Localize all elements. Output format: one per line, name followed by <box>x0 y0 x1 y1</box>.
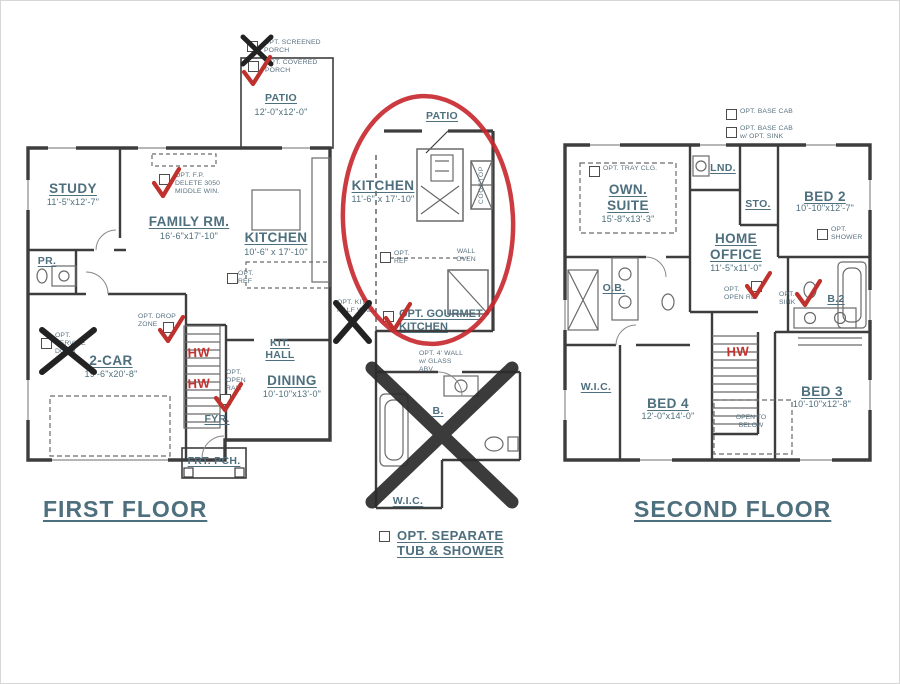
opt-half-wall-label: OPT. KIT. HALF WALL <box>337 299 376 315</box>
open-to-below-label: OPEN TO BELOW <box>736 414 766 430</box>
study-dims: 11'-5"x12'-7" <box>47 197 99 208</box>
foyer-label: FYR. <box>204 413 229 425</box>
bed2-dims: 10'-10"x12'-7" <box>796 203 854 214</box>
storage-label: STO. <box>745 198 771 210</box>
tub <box>380 394 408 466</box>
gourmet-inset-fixtures <box>390 149 492 314</box>
bed4-dims: 12'-0"x14'-0" <box>642 411 695 422</box>
b2-toilet <box>804 282 816 298</box>
kitchen-island <box>252 190 300 230</box>
opt-screened-porch-checkbox <box>247 41 258 52</box>
opt-open-rail-checkbox <box>220 394 231 405</box>
gourmet-patio-label: PATIO <box>426 110 458 122</box>
owners-suite-dims: 15'-8"x13'-3" <box>602 214 655 225</box>
kitchen-label: KITCHEN <box>245 230 308 246</box>
bath-vanity <box>444 376 478 396</box>
powder-room-label: PR. <box>38 255 56 267</box>
ob-toilet <box>662 294 674 310</box>
opt-open-rail-sf-checkbox <box>751 281 762 292</box>
second-floor-title: SECOND FLOOR <box>634 496 831 523</box>
b2-vanity <box>794 308 856 328</box>
opt-gourmet-kitchen-label: OPT. GOURMET KITCHEN <box>399 308 483 334</box>
toilet-tank <box>508 437 518 451</box>
hw-mark-sf: HW <box>726 344 749 360</box>
opt-sink-label: OPT. SINK <box>779 291 795 307</box>
dining-dims: 10'-10"x13'-0" <box>263 389 321 400</box>
opt-shower-checkbox <box>817 229 828 240</box>
bath2-label: B.2 <box>827 293 844 305</box>
pr-toilet <box>37 269 47 283</box>
bath-wic-label: W.I.C. <box>393 495 423 507</box>
bed4-label: BED 4 <box>647 396 689 412</box>
hw-mark-lower: HW <box>187 376 210 392</box>
opt-screened-porch-label: OPT. SCREENED PORCH <box>264 39 321 55</box>
family-room-label: FAMILY RM. <box>149 214 230 230</box>
dining-label: DINING <box>267 373 317 389</box>
floorplan-page: PATIO 12'-0"x12'-0" OPT. SCREENED PORCH … <box>0 0 900 684</box>
wic-sf-label: W.I.C. <box>581 381 611 393</box>
garage-dims: 19'-6"x20'-8" <box>85 369 138 380</box>
opt-fireplace-label: OPT. F.P. DELETE 3050 MIDDLE WIN. <box>175 172 220 196</box>
bed3-label: BED 3 <box>801 384 843 400</box>
opt-fridge-checkbox <box>227 273 238 284</box>
opt-tray-clg-label: OPT. TRAY CLG. <box>603 165 657 173</box>
opt-base-cab-sink-label: OPT. BASE CAB w/ OPT. SINK <box>740 125 793 141</box>
window-lines <box>28 145 870 460</box>
garage-door-dashed <box>50 396 170 456</box>
opt-open-rail-label: OPT. OPEN RAIL <box>226 369 246 393</box>
toilet-bowl <box>485 437 503 451</box>
front-porch-label: FRT. PCH. <box>188 455 241 467</box>
home-office-label: HOME OFFICE <box>710 231 762 263</box>
opt-fridge-label: OPT. REF <box>238 270 254 286</box>
opt-separate-tub-label: OPT. SEPARATE TUB & SHOWER <box>397 528 504 559</box>
gourmet-kitchen-dims: 11'-6" x 17'-10" <box>352 194 415 205</box>
patio-dims: 12'-0"x12'-0" <box>255 107 308 118</box>
kitchen-counter <box>312 158 330 282</box>
window-gaps <box>28 145 870 460</box>
opt-wall-glass-label: OPT. 4' WALL w/ GLASS ABV. <box>419 350 463 374</box>
bath-inset-fixtures <box>380 372 518 466</box>
owners-bath-label: O.B. <box>603 282 626 294</box>
opt-gourmet-kitchen-checkbox <box>383 311 394 322</box>
first-floor-title: FIRST FLOOR <box>43 496 207 523</box>
opt-shower-label: OPT. SHOWER <box>831 226 863 242</box>
opt-base-cab-checkbox <box>726 109 737 120</box>
family-room-dims: 16'-6"x17'-10" <box>160 231 218 242</box>
opt-service-door-label: OPT. SERVICE DOOR <box>55 332 86 356</box>
owners-suite-label: OWN. SUITE <box>607 182 649 214</box>
opt-tray-clg-checkbox <box>589 166 600 177</box>
fireplace-dashed-box <box>152 154 216 166</box>
pr-vanity <box>52 266 76 286</box>
bed3-dims: 10'-10"x12'-8" <box>793 399 851 410</box>
opt-base-cab-sink-checkbox <box>726 127 737 138</box>
floorplan-linework <box>0 0 900 684</box>
first-floor-walls <box>28 58 333 478</box>
home-office-dims: 11'-5"x11'-0" <box>710 263 762 274</box>
opt-covered-porch-label: OPT. COVERED PORCH <box>265 59 317 75</box>
patio-label: PATIO <box>265 92 297 104</box>
hw-mark-upper: HW <box>187 345 210 361</box>
garage-label: 2-CAR <box>89 353 132 369</box>
cooktop-label: COOKTOP <box>478 166 486 204</box>
gourmet-opt-fridge-label: OPT. REF <box>394 250 410 266</box>
bath-label: B. <box>432 405 443 417</box>
laundry-label: LND. <box>710 162 736 174</box>
kitchen-dims: 10'-6" x 17'-10" <box>244 247 308 258</box>
opt-fireplace-checkbox <box>159 174 170 185</box>
study-label: STUDY <box>49 181 97 197</box>
opt-separate-tub-checkbox <box>379 531 390 542</box>
gourmet-island <box>417 149 463 221</box>
gourmet-opt-fridge-checkbox <box>380 252 391 263</box>
opt-service-door-checkbox <box>41 338 52 349</box>
gourmet-kitchen-label: KITCHEN <box>352 178 415 194</box>
opt-base-cab-label: OPT. BASE CAB <box>740 108 793 116</box>
wall-oven-label: WALL OVEN <box>456 248 475 264</box>
opt-drop-zone-checkbox <box>163 322 174 333</box>
opt-covered-porch-checkbox <box>248 61 259 72</box>
bed3-closet <box>798 338 862 345</box>
kit-hall-label: KIT. HALL <box>265 337 294 362</box>
